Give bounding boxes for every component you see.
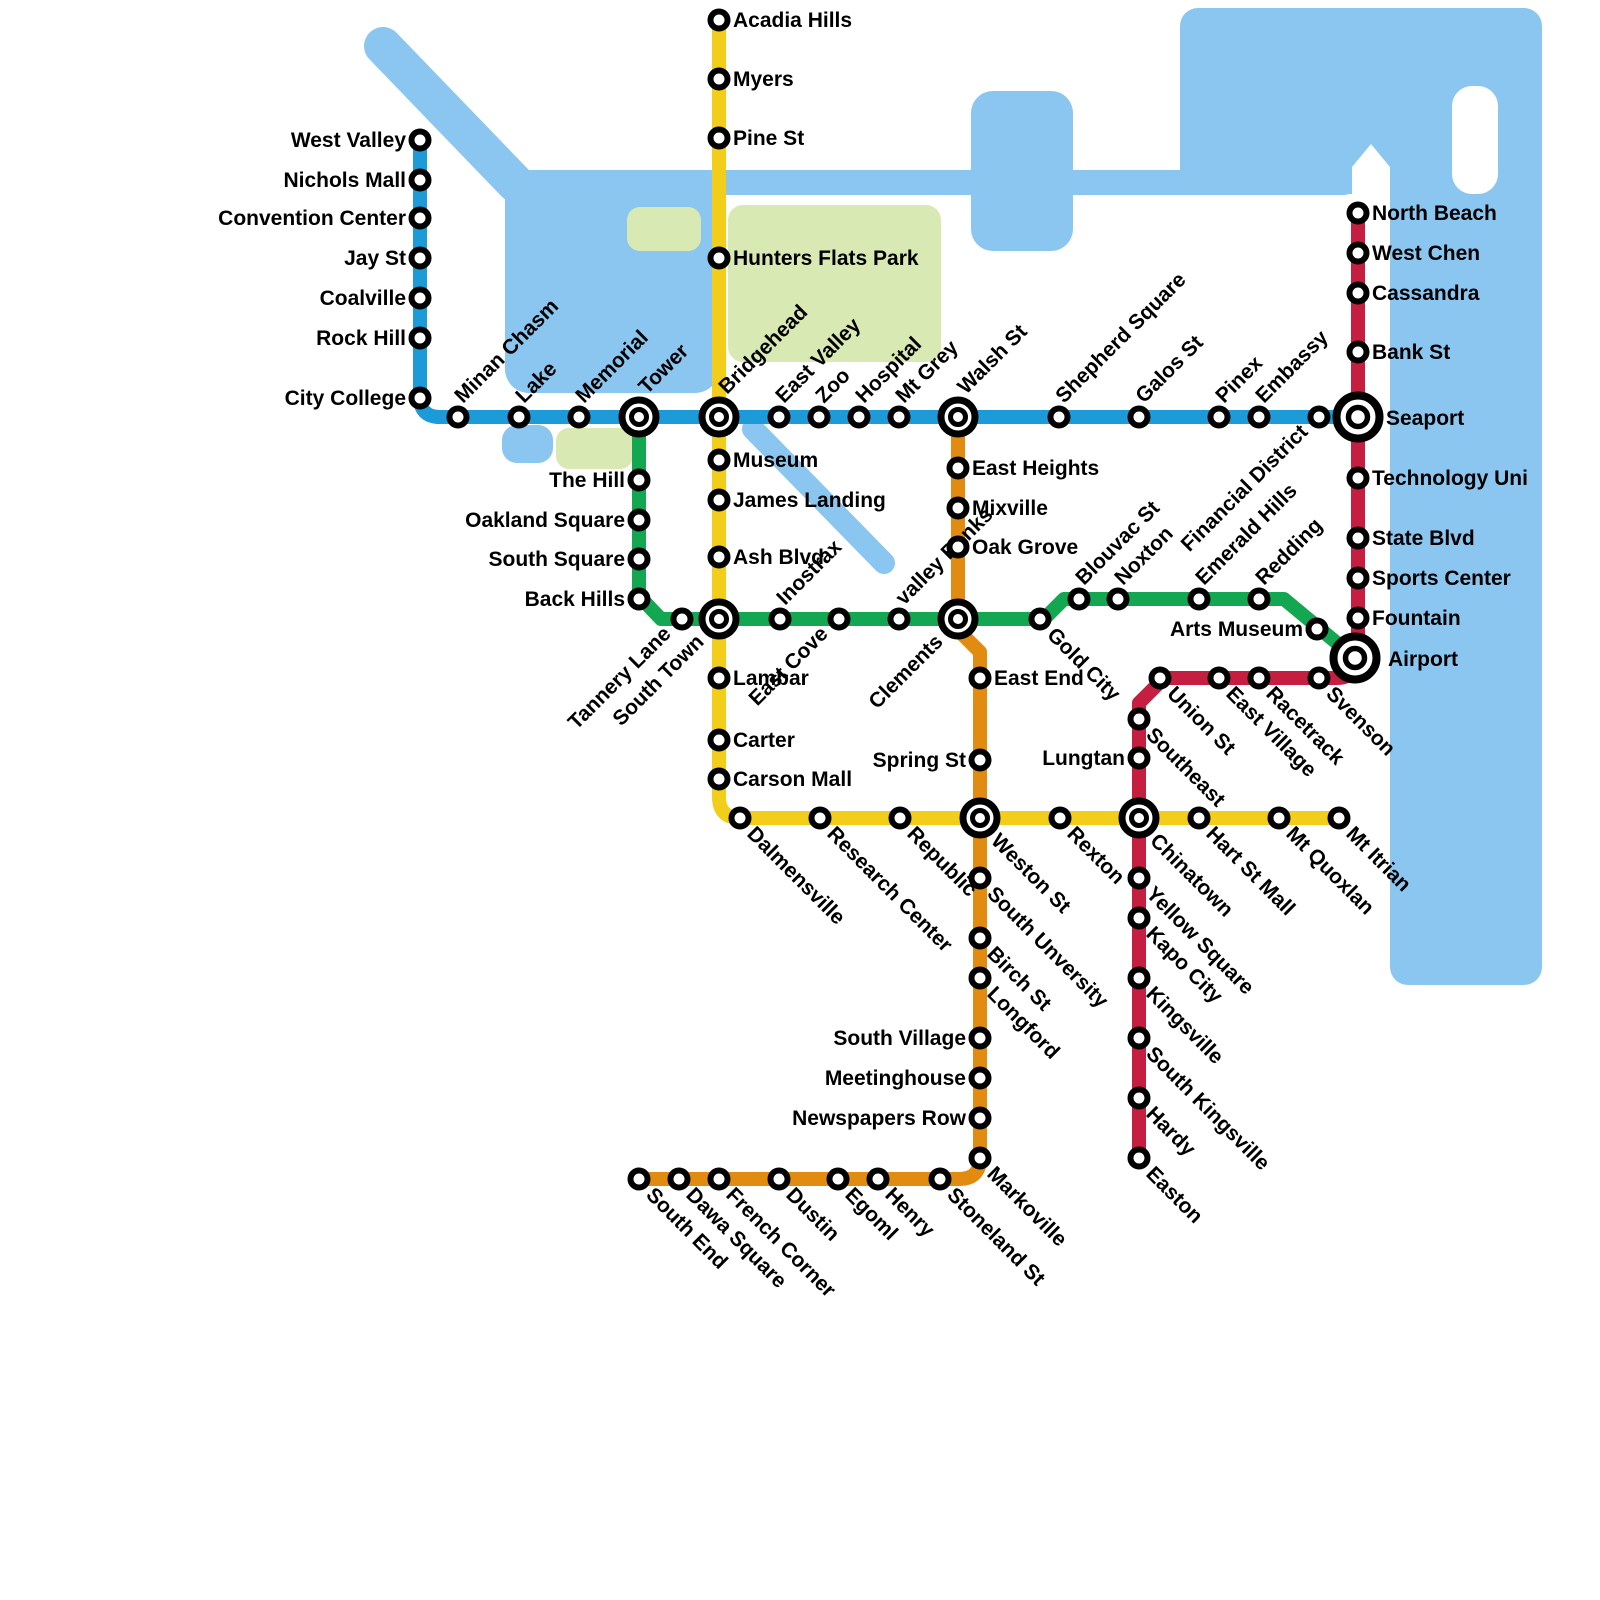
label-west-valley: West Valley — [291, 129, 407, 152]
station-birch-st[interactable] — [972, 930, 989, 947]
interchange-inner-ring — [973, 811, 988, 826]
station-stoneland-st[interactable] — [932, 1171, 949, 1188]
label-arts-museum: Arts Museum — [1170, 618, 1303, 641]
interchange-inner-ring — [632, 410, 647, 425]
interchange-seaport[interactable] — [1337, 396, 1380, 439]
station-memorial[interactable] — [571, 409, 588, 426]
station-redding[interactable] — [1251, 591, 1268, 608]
station-henry[interactable] — [870, 1171, 887, 1188]
park-memorial-south — [556, 428, 633, 469]
station-rexton[interactable] — [1052, 810, 1069, 827]
station-french-corner[interactable] — [711, 1171, 728, 1188]
station-emerald-hills[interactable] — [1191, 591, 1208, 608]
label-oakland-square: Oakland Square — [465, 509, 625, 532]
interchange-tower[interactable] — [622, 400, 656, 434]
station-convention-center[interactable] — [412, 210, 429, 227]
station-coalville[interactable] — [412, 290, 429, 307]
river-northwest — [383, 46, 516, 184]
station-southeast[interactable] — [1131, 711, 1148, 728]
station-pinex[interactable] — [1211, 409, 1228, 426]
label-state-blvd: State Blvd — [1372, 527, 1475, 550]
line-orange — [639, 417, 980, 1179]
interchange-inner-ring — [1132, 811, 1147, 826]
transit-map-canvas: West ValleyNichols MallConvention Center… — [0, 0, 1600, 1600]
lake-north — [971, 91, 1073, 251]
station-south-square[interactable] — [631, 551, 648, 568]
station-inostrax[interactable] — [772, 611, 789, 628]
label-mixville: Mixville — [972, 497, 1048, 520]
station-oak-grove[interactable] — [950, 539, 967, 556]
pond-small — [502, 425, 553, 463]
label-newspapers-row: Newspapers Row — [792, 1107, 967, 1130]
station-carter[interactable] — [711, 732, 728, 749]
station-state-blvd[interactable] — [1350, 530, 1367, 547]
station-east-valley[interactable] — [771, 409, 788, 426]
label-east-end: East End — [994, 667, 1084, 690]
label-city-college: City College — [285, 387, 406, 410]
interchange-airport[interactable] — [1334, 637, 1377, 680]
label-carter: Carter — [733, 729, 795, 752]
interchange-inner-ring — [951, 410, 966, 425]
station-south-unversity[interactable] — [972, 870, 989, 887]
station-sports-center[interactable] — [1350, 570, 1367, 587]
station-union-st[interactable] — [1152, 670, 1169, 687]
label-walsh-st: Walsh St — [953, 320, 1031, 398]
label-airport: Airport — [1388, 648, 1458, 671]
station-svenson[interactable] — [1311, 670, 1328, 687]
station-bank-st[interactable] — [1350, 344, 1367, 361]
label-james-landing: James Landing — [733, 489, 886, 512]
station-hunters-flats-park[interactable] — [711, 250, 728, 267]
label-west-chen: West Chen — [1372, 242, 1480, 265]
label-back-hills: Back Hills — [525, 588, 625, 611]
station-lake[interactable] — [511, 409, 528, 426]
station-west-valley[interactable] — [412, 132, 429, 149]
station-ash-blvd[interactable] — [711, 549, 728, 566]
station-longford[interactable] — [972, 970, 989, 987]
interchange-chinatown[interactable] — [1122, 801, 1156, 835]
station-back-hills[interactable] — [631, 591, 648, 608]
label-galos-st: Galos St — [1131, 331, 1208, 408]
label-gold-city: Gold City — [1042, 623, 1124, 705]
station-mt-quoxlan[interactable] — [1271, 810, 1288, 827]
station-research-center[interactable] — [812, 810, 829, 827]
label-museum: Museum — [733, 449, 818, 472]
station-the-hill[interactable] — [631, 472, 648, 489]
label-pine-st: Pine St — [733, 127, 804, 150]
station-valley-banks[interactable] — [891, 611, 908, 628]
station-kapo-city[interactable] — [1131, 910, 1148, 927]
station-dawa-square[interactable] — [671, 1171, 688, 1188]
label-seaport: Seaport — [1386, 407, 1464, 430]
station-east-cove[interactable] — [831, 611, 848, 628]
station-carson-mall[interactable] — [711, 771, 728, 788]
label-acadia-hills: Acadia Hills — [733, 9, 852, 32]
station-hart-st-mall[interactable] — [1191, 810, 1208, 827]
station-arts-museum[interactable] — [1309, 621, 1326, 638]
station-cassandra[interactable] — [1350, 285, 1367, 302]
station-west-chen[interactable] — [1350, 245, 1367, 262]
station-minan-chasm[interactable] — [450, 409, 467, 426]
station-fountain[interactable] — [1350, 610, 1367, 627]
interchange-inner-ring — [1346, 649, 1365, 668]
label-north-beach: North Beach — [1372, 202, 1497, 225]
label-nichols-mall: Nichols Mall — [283, 169, 406, 192]
interchange-inner-ring — [712, 410, 727, 425]
station-embassy[interactable] — [1251, 409, 1268, 426]
interchange-walsh-st[interactable] — [941, 400, 975, 434]
station-egoml[interactable] — [830, 1171, 847, 1188]
station-south-kingsville[interactable] — [1131, 1030, 1148, 1047]
station-racetrack[interactable] — [1251, 670, 1268, 687]
interchange-clements[interactable] — [941, 602, 975, 636]
station-east-heights[interactable] — [950, 460, 967, 477]
station-north-beach[interactable] — [1350, 205, 1367, 222]
label-the-hill: The Hill — [549, 469, 625, 492]
label-coalville: Coalville — [320, 287, 406, 310]
label-shepherd-square: Shepherd Square — [1051, 268, 1190, 407]
station-newspapers-row[interactable] — [972, 1110, 989, 1127]
label-sports-center: Sports Center — [1372, 567, 1511, 590]
station-zoo[interactable] — [811, 409, 828, 426]
label-fountain: Fountain — [1372, 607, 1461, 630]
station-dustin[interactable] — [771, 1171, 788, 1188]
station-acadia-hills[interactable] — [711, 12, 728, 29]
station-rock-hill[interactable] — [412, 330, 429, 347]
station-hospital[interactable] — [851, 409, 868, 426]
station-shepherd-square[interactable] — [1051, 409, 1068, 426]
station-pine-st[interactable] — [711, 130, 728, 147]
station-myers[interactable] — [711, 71, 728, 88]
station-kingsville[interactable] — [1131, 970, 1148, 987]
station-mt-grey[interactable] — [891, 409, 908, 426]
label-meetinghouse: Meetinghouse — [825, 1067, 966, 1090]
label-hunters-flats-park: Hunters Flats Park — [733, 247, 919, 270]
interchange-inner-ring — [1349, 408, 1368, 427]
label-convention-center: Convention Center — [218, 207, 406, 230]
island — [1452, 86, 1498, 194]
interchange-south-town[interactable] — [702, 602, 736, 636]
station-east-village[interactable] — [1211, 670, 1228, 687]
label-jay-st: Jay St — [344, 247, 406, 270]
label-myers: Myers — [733, 68, 794, 91]
station-gold-city[interactable] — [1032, 611, 1049, 628]
label-lungtan: Lungtan — [1042, 747, 1125, 770]
station-blouvac-st[interactable] — [1071, 591, 1088, 608]
label-east-heights: East Heights — [972, 457, 1099, 480]
station-meetinghouse[interactable] — [972, 1070, 989, 1087]
station-mt-itrian[interactable] — [1331, 810, 1348, 827]
park-west — [627, 207, 701, 251]
station-city-college[interactable] — [412, 390, 429, 407]
sea-east — [1390, 60, 1542, 985]
station-galos-st[interactable] — [1131, 409, 1148, 426]
label-clements: Clements — [864, 630, 947, 713]
station-spring-st[interactable] — [972, 752, 989, 769]
station-hardy[interactable] — [1131, 1090, 1148, 1107]
label-easton: Easton — [1141, 1162, 1207, 1228]
label-carson-mall: Carson Mall — [733, 768, 852, 791]
station-south-village[interactable] — [972, 1030, 989, 1047]
interchange-weston-st[interactable] — [963, 801, 997, 835]
label-south-village: South Village — [833, 1027, 966, 1050]
station-lungtan[interactable] — [1131, 750, 1148, 767]
station-markoville[interactable] — [972, 1150, 989, 1167]
station-tannery-lane[interactable] — [674, 611, 691, 628]
station-mixville[interactable] — [950, 500, 967, 517]
station-nichols-mall[interactable] — [412, 172, 429, 189]
station-oakland-square[interactable] — [631, 512, 648, 529]
station-noxton[interactable] — [1110, 591, 1127, 608]
interchange-inner-ring — [951, 612, 966, 627]
station-dalmensville[interactable] — [732, 810, 749, 827]
station-easton[interactable] — [1131, 1150, 1148, 1167]
station-technology-uni[interactable] — [1350, 470, 1367, 487]
label-rexton: Rexton — [1062, 822, 1129, 889]
station-republic[interactable] — [892, 810, 909, 827]
station-financial-district[interactable] — [1311, 409, 1328, 426]
station-south-end[interactable] — [631, 1171, 648, 1188]
interchange-inner-ring — [712, 612, 727, 627]
label-hardy: Hardy — [1141, 1102, 1200, 1161]
station-lambar[interactable] — [711, 670, 728, 687]
label-cassandra: Cassandra — [1372, 282, 1480, 305]
label-bank-st: Bank St — [1372, 341, 1450, 364]
label-south-square: South Square — [488, 548, 625, 571]
station-east-end[interactable] — [972, 670, 989, 687]
label-rock-hill: Rock Hill — [316, 327, 406, 350]
label-oak-grove: Oak Grove — [972, 536, 1078, 559]
label-technology-uni: Technology Uni — [1372, 467, 1528, 490]
station-yellow-square[interactable] — [1131, 870, 1148, 887]
transit-map: West ValleyNichols MallConvention Center… — [0, 0, 1600, 1600]
station-museum[interactable] — [711, 452, 728, 469]
station-james-landing[interactable] — [711, 492, 728, 509]
station-jay-st[interactable] — [412, 250, 429, 267]
interchange-bridgehead[interactable] — [702, 400, 736, 434]
label-spring-st: Spring St — [873, 749, 966, 772]
